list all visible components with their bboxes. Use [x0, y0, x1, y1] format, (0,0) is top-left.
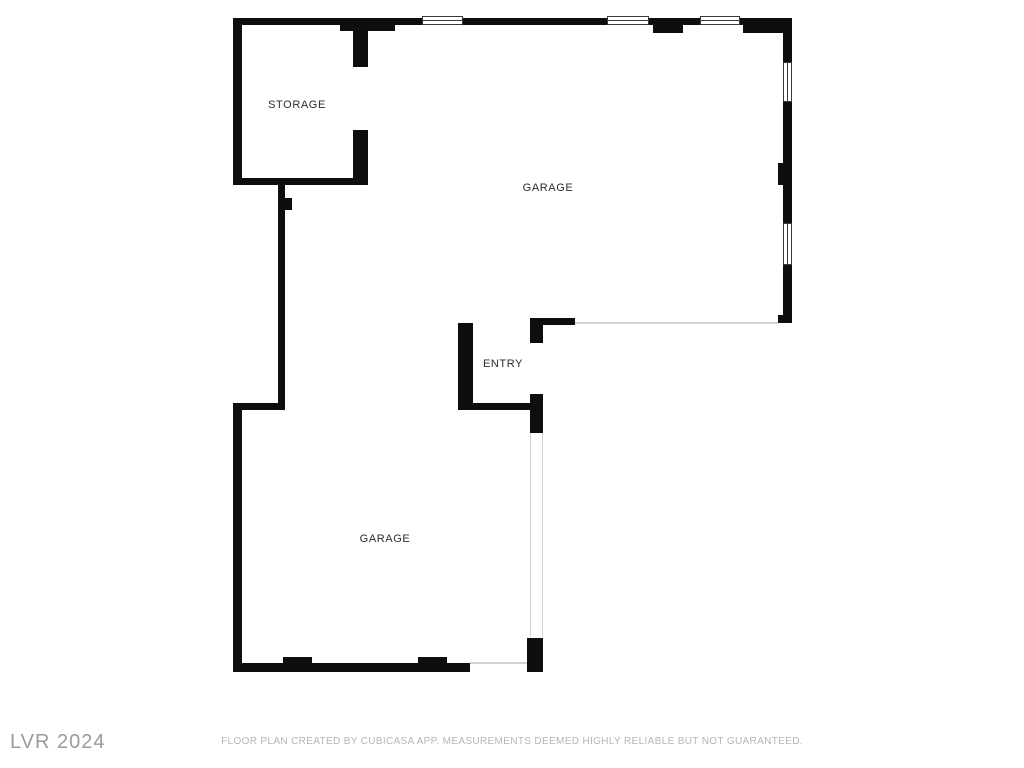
garage-lower-door-opening-line [470, 662, 527, 664]
room-label-entry: ENTRY [483, 358, 523, 370]
wall-storage-left [233, 18, 242, 185]
room-label-garage-lower: GARAGE [360, 533, 411, 545]
garage-lower-right-opening [530, 433, 543, 637]
wall-garage-lower-bottom-right-corner [527, 638, 543, 672]
floor-plan-canvas: STORAGE GARAGE ENTRY GARAGE LVR 2024 FLO… [0, 0, 1024, 768]
window-icon-top-2 [607, 16, 649, 25]
wall-entry-right-upper [530, 318, 543, 343]
window-icon-top-3 [700, 16, 740, 25]
wall-entry-right-lower [530, 394, 543, 433]
wall-mid-vertical-bump [285, 198, 292, 210]
room-label-storage: STORAGE [268, 99, 326, 111]
wall-entry-left [458, 323, 473, 410]
wall-storage-bottom [233, 178, 368, 185]
room-label-garage-upper: GARAGE [523, 182, 574, 194]
disclaimer-text: FLOOR PLAN CREATED BY CUBICASA APP. MEAS… [0, 736, 1024, 747]
wall-right-bump-upper [778, 163, 783, 185]
wall-storage-right-upper [353, 25, 368, 67]
wall-mid-vertical [278, 185, 285, 410]
window-icon-right-2 [783, 223, 792, 265]
wall-garage-lower-left [233, 403, 242, 672]
window-icon-right-1 [783, 62, 792, 102]
window-icon-top-1 [422, 16, 463, 25]
garage-upper-opening-line [575, 322, 778, 324]
wall-storage-right-lower [353, 130, 368, 185]
wall-garage-lower-bottom-stub-2 [418, 657, 447, 663]
wall-entry-bottom [458, 403, 533, 410]
wall-garage-lower-bottom-stub-1 [283, 657, 312, 663]
wall-right-bump-lower [778, 315, 783, 323]
wall-top-thick-mid [653, 18, 683, 33]
wall-garage-lower-bottom [233, 663, 470, 672]
